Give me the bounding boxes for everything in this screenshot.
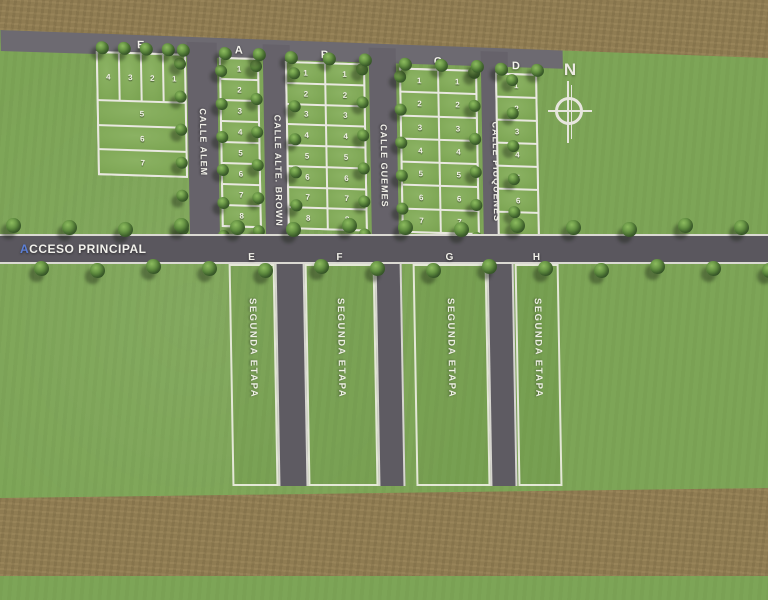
tree: [622, 222, 637, 237]
tree: [398, 220, 413, 235]
compass-circle-icon: [555, 97, 583, 125]
tree: [146, 259, 161, 274]
tree: [202, 261, 217, 276]
tree: [230, 220, 245, 235]
tree: [314, 259, 329, 274]
tree: [426, 263, 441, 278]
tree: [566, 220, 581, 235]
dirt-field-bottom: [0, 486, 768, 576]
tree: [454, 222, 469, 237]
compass-north-label: N: [557, 60, 583, 80]
tree: [62, 220, 77, 235]
tree: [118, 222, 133, 237]
tree: [482, 259, 497, 274]
tree: [90, 263, 105, 278]
tree: [706, 261, 721, 276]
tree: [342, 218, 357, 233]
tree: [650, 259, 665, 274]
tree: [34, 261, 49, 276]
tree: [6, 218, 21, 233]
tree: [174, 218, 189, 233]
tree: [370, 261, 385, 276]
tree: [286, 222, 301, 237]
tree: [538, 261, 553, 276]
tree: [510, 218, 525, 233]
tree: [734, 220, 749, 235]
tree: [594, 263, 609, 278]
tree: [762, 263, 768, 278]
site-plan-map: { "map": { "access_road_label": "ACCESO …: [0, 0, 768, 576]
north-compass: N: [540, 60, 600, 145]
tree: [258, 263, 273, 278]
tree: [678, 218, 693, 233]
